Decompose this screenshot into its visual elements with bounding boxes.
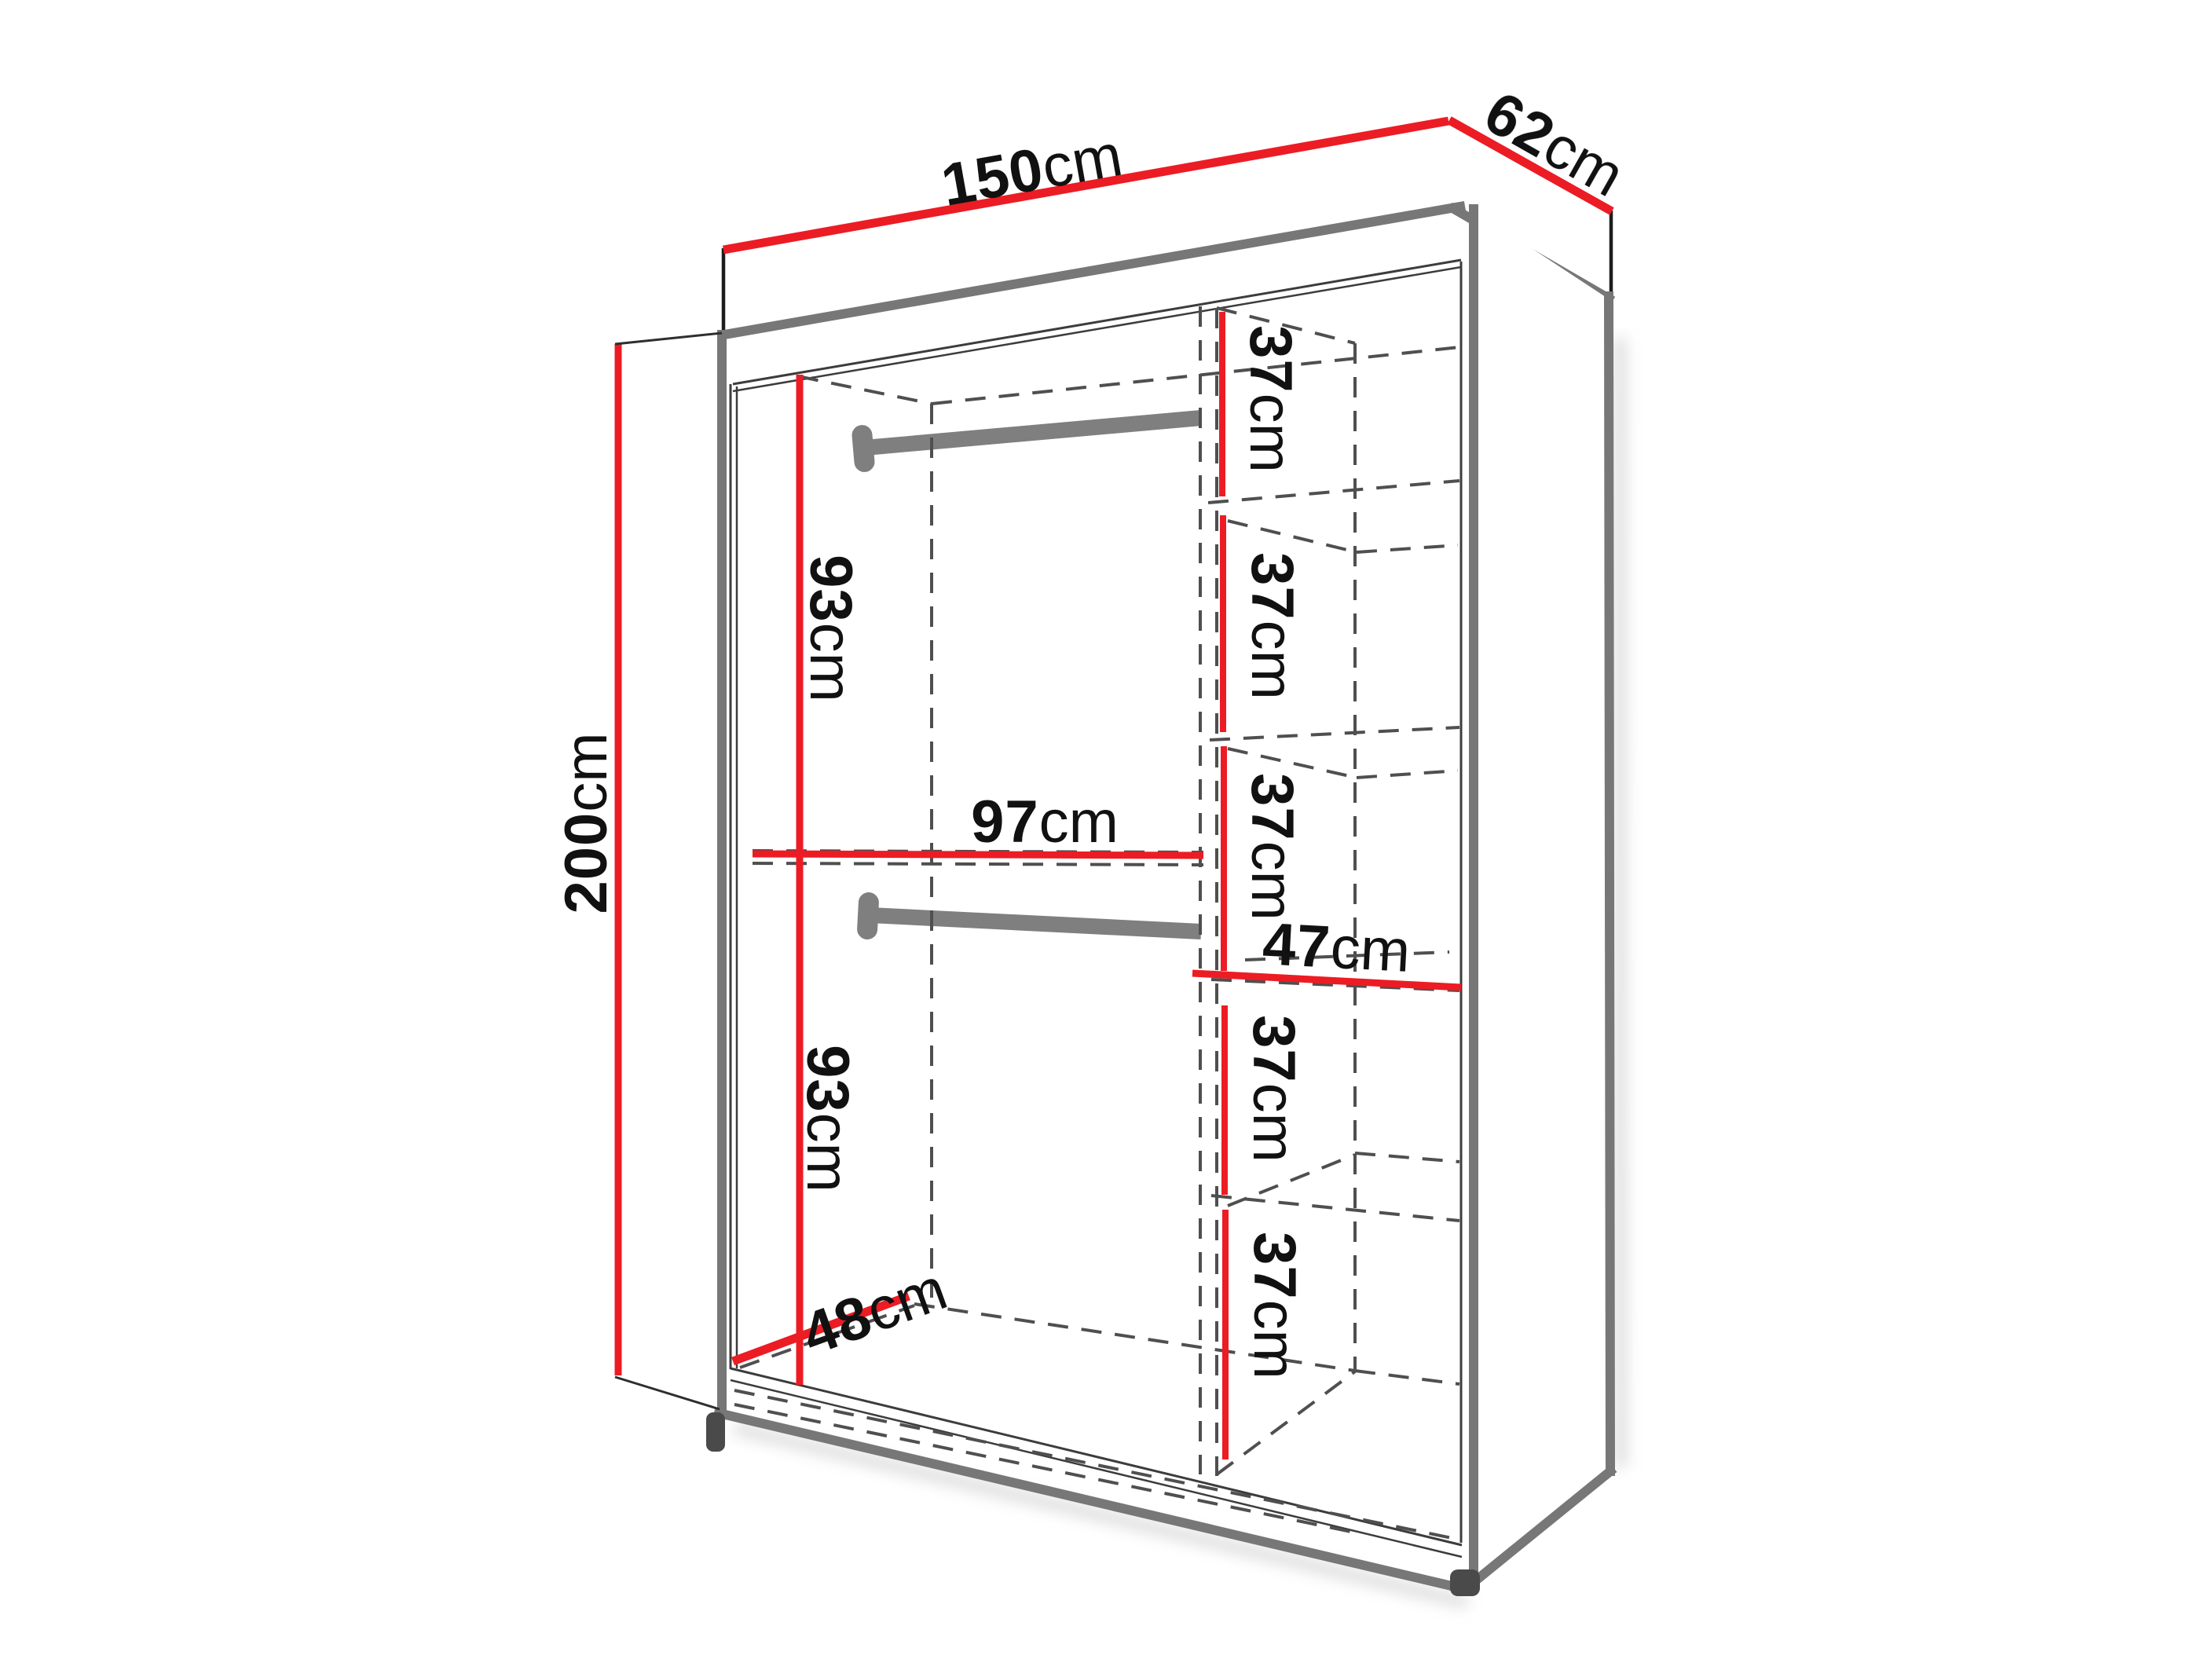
interior-frame	[731, 260, 1462, 1557]
upper-hanging-height-label: 93cm	[797, 555, 864, 702]
shelf-width-label: 47cm	[1261, 910, 1412, 985]
shelf5-height-value: 37	[1241, 1232, 1308, 1300]
shelf3-height-value: 37	[1239, 773, 1306, 841]
shelf2-height-value: 37	[1239, 552, 1306, 621]
interior-width-label: 97cm	[971, 789, 1119, 855]
shelf4-height-label: 37cm	[1240, 1015, 1307, 1163]
left-foot	[706, 1412, 725, 1452]
lower-hanging-rail	[870, 915, 1201, 932]
shelf4-front-edge	[1211, 1196, 1459, 1221]
upper-hanging-height-value: 93	[797, 555, 864, 623]
interior-width-unit: cm	[1039, 789, 1119, 855]
interior-floor-edge-2	[731, 1380, 1462, 1557]
hanging-rails	[851, 418, 1201, 940]
upper-hanging-rail	[865, 418, 1201, 448]
width-unit: cm	[1037, 122, 1127, 201]
shelf1-height-label: 37cm	[1237, 325, 1304, 473]
shelf1-back-edge	[1357, 545, 1458, 552]
upper-rail-end-cap	[851, 424, 875, 473]
shelf1-height-unit: cm	[1237, 394, 1304, 473]
wardrobe-dimension-diagram: 150cm 62cm 200cm 93cm 93cm 97cm 47cm 48c…	[0, 0, 2212, 1659]
plinth-hidden-edge-2	[734, 1404, 1351, 1532]
shelf5-height-label: 37cm	[1241, 1232, 1308, 1379]
interior-width-value: 97	[971, 789, 1039, 855]
right-side-panel	[1468, 211, 1610, 1585]
shadow-bottom	[734, 1428, 1467, 1602]
height-label: 200cm	[553, 732, 620, 914]
interior-depth-label: 48cm	[794, 1255, 956, 1368]
shelf1-depth-edge	[1228, 521, 1357, 552]
lower-rail-end-cap	[856, 892, 879, 939]
shelf2-height-label: 37cm	[1239, 552, 1306, 700]
back-right-outer-edge	[1609, 296, 1610, 1471]
upper-hanging-height-unit: cm	[797, 623, 864, 702]
shelf1-height-value: 37	[1237, 325, 1304, 394]
page: 150cm 62cm 200cm 93cm 93cm 97cm 47cm 48c…	[0, 0, 2212, 1659]
shelf2-front-edge	[1210, 727, 1459, 740]
shelf4-height-unit: cm	[1240, 1083, 1307, 1163]
height-unit: cm	[553, 732, 620, 811]
right-foot	[1450, 1569, 1480, 1596]
shelf5-height-unit: cm	[1241, 1300, 1308, 1379]
shelf4-height-value: 37	[1240, 1015, 1307, 1083]
shelf1-front-edge	[1208, 481, 1459, 503]
lower-hanging-height-label: 93cm	[794, 1045, 861, 1192]
shelf2-height-unit: cm	[1239, 621, 1306, 700]
height-value: 200	[553, 812, 620, 914]
lower-hanging-height-value: 93	[794, 1045, 861, 1113]
shelf2-back-edge	[1357, 771, 1458, 778]
shelf3-height-label: 37cm	[1239, 773, 1306, 921]
shelf4-back-edge	[1355, 1153, 1459, 1162]
divider-bottom-depth-edge	[1217, 1372, 1355, 1474]
back-top-edge	[932, 347, 1459, 404]
mid-shelf-edge-2	[753, 863, 1203, 865]
shelf-width-value: 47	[1261, 910, 1332, 980]
lower-hanging-height-unit: cm	[794, 1113, 861, 1192]
shadow-right	[1620, 338, 1621, 1467]
dim-height-tick-top	[615, 333, 722, 344]
shelf3-height-unit: cm	[1239, 841, 1306, 921]
dim-height-tick-bottom	[615, 1377, 720, 1409]
back-bottom-edge-right	[1355, 1371, 1459, 1384]
back-top-left-depth-edge	[798, 376, 932, 404]
shelf-width-unit: cm	[1329, 914, 1412, 985]
bottom-outer-edge	[719, 1413, 1468, 1590]
